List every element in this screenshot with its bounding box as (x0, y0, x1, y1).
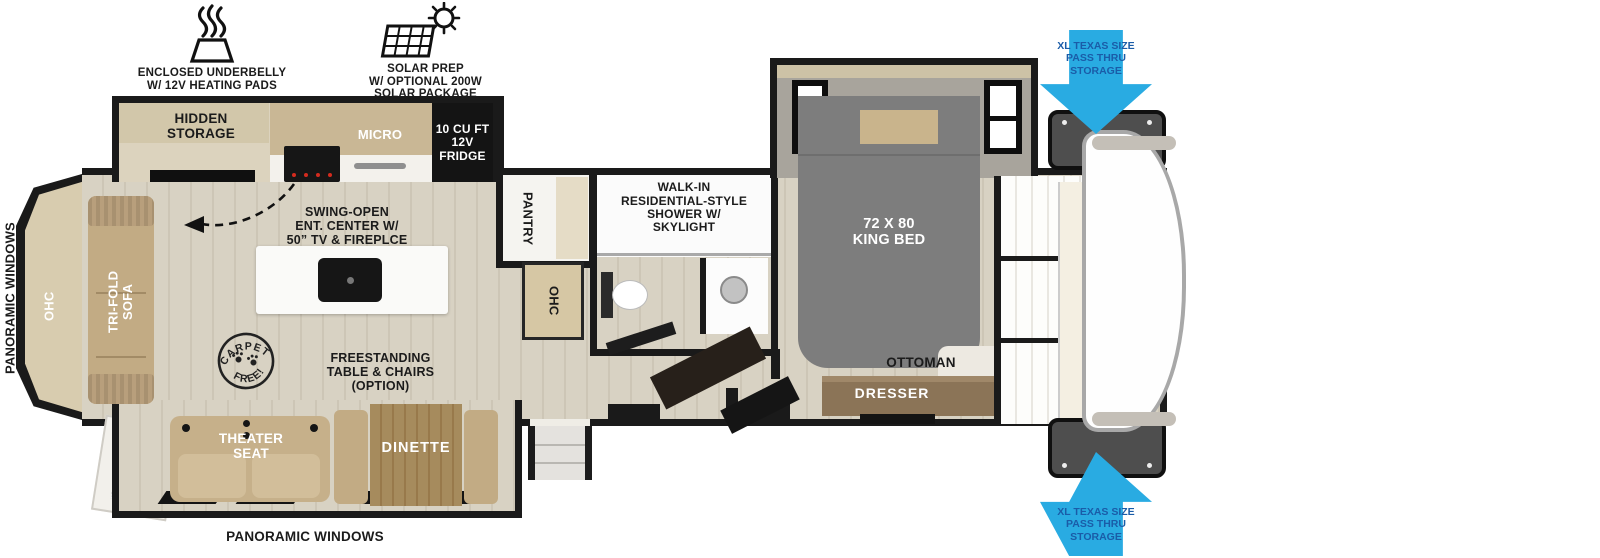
king-bed-label: 72 X 80 KING BED (798, 212, 980, 252)
pantry-label: PANTRY (514, 178, 540, 260)
ohc-mid-label: OHC (540, 270, 566, 332)
pantry-shelf (556, 177, 588, 259)
ottoman-label: OTTOMAN (862, 354, 980, 372)
floorplan: ENCLOSED UNDERBELLY W/ 12V HEATING PADS … (0, 0, 1600, 558)
shower-label: WALK-IN RESIDENTIAL-STYLE SHOWER W/ SKYL… (598, 178, 770, 238)
front-cap (1082, 130, 1186, 432)
bath-sink (720, 276, 748, 304)
bedroom-floor-mat (860, 414, 935, 424)
bath-corner-wall (771, 349, 780, 379)
hidden-storage-label: HIDDEN STORAGE (140, 108, 262, 144)
toilet-bowl (612, 280, 648, 310)
range-handle (354, 163, 406, 169)
panoramic-windows-bottom-label: PANORAMIC WINDOWS (200, 526, 410, 548)
bedroom-window-right (984, 80, 1022, 154)
wall-kitchen-pantry (495, 96, 504, 175)
tri-fold-sofa-label: TRI-FOLD SOFA (98, 244, 144, 360)
shower-glass-line (597, 253, 771, 256)
underbelly-label: ENCLOSED UNDERBELLY W/ 12V HEATING PADS (90, 64, 334, 96)
island-sink (318, 258, 382, 302)
freestanding-table-label: FREESTANDING TABLE & CHAIRS (OPTION) (283, 347, 478, 397)
pass-thru-bottom-label: XL TEXAS SIZE PASS THRU STORAGE (1052, 506, 1140, 543)
dresser-label: DRESSER (832, 382, 952, 406)
bed-pillow (860, 110, 938, 144)
hall-wall (608, 404, 660, 419)
carpet-free-stamp: CARPET FREE! (198, 328, 294, 394)
entry-opening (530, 419, 590, 426)
panoramic-windows-left-label: PANORAMIC WINDOWS (1, 188, 21, 408)
ohc-rear-label: OHC (40, 268, 60, 344)
theater-seat-label: THEATER SEAT (196, 428, 306, 464)
heating-pads-icon (186, 2, 238, 64)
entry-steps (528, 426, 592, 480)
wardrobe-wall (994, 176, 1001, 424)
solar-prep-icon (378, 2, 468, 62)
pass-thru-top-label: XL TEXAS SIZE PASS THRU STORAGE (1052, 40, 1140, 77)
dinette-label: DINETTE (352, 438, 480, 458)
bedroom-slide-shelf (777, 65, 1031, 78)
ent-center-arrow (182, 176, 300, 238)
fridge-label: 10 CU FT 12V FRIDGE (432, 106, 493, 180)
micro-label: MICRO (348, 126, 412, 144)
